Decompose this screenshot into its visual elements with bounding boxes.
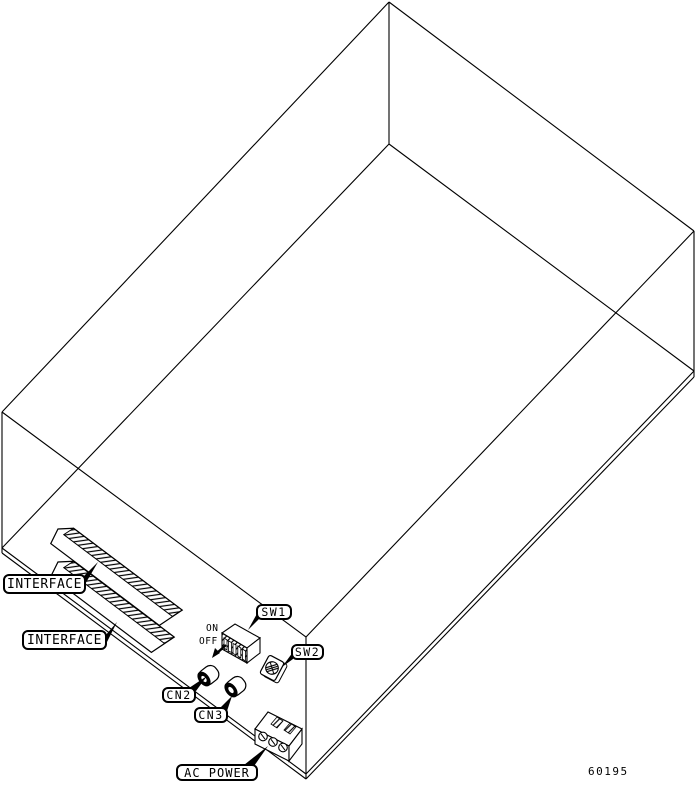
label-cn3-text: CN3 [198, 708, 223, 722]
label-cn2: CN2 [162, 687, 196, 703]
label-ac-power: AC POWER [176, 764, 258, 781]
dip-on-label: ON [206, 623, 218, 634]
chassis-wireframe-drawing [0, 0, 696, 794]
dip-switch-sw1 [222, 624, 260, 663]
label-sw1-text: SW1 [261, 605, 286, 619]
label-interface-top-text: INTERFACE [7, 577, 82, 592]
label-cn2-text: CN2 [166, 688, 191, 702]
label-interface-bottom-text: INTERFACE [27, 633, 102, 648]
label-interface-bottom: INTERFACE [22, 630, 107, 650]
rear-panel-connector-diagram: INTERFACE INTERFACE SW1 SW2 CN2 CN3 AC P… [0, 0, 696, 794]
label-ac-power-text: AC POWER [184, 766, 250, 780]
label-sw2-text: SW2 [295, 645, 320, 659]
label-sw2: SW2 [291, 644, 324, 660]
rotary-switch-sw2 [259, 655, 288, 684]
chassis-edges [2, 2, 694, 779]
label-interface-top: INTERFACE [3, 574, 86, 594]
connector-cn3-jack [222, 674, 249, 700]
figure-number: 60195 [588, 765, 629, 778]
dip-off-label: OFF [199, 636, 218, 647]
label-sw1: SW1 [256, 604, 292, 620]
label-cn3: CN3 [194, 707, 228, 723]
